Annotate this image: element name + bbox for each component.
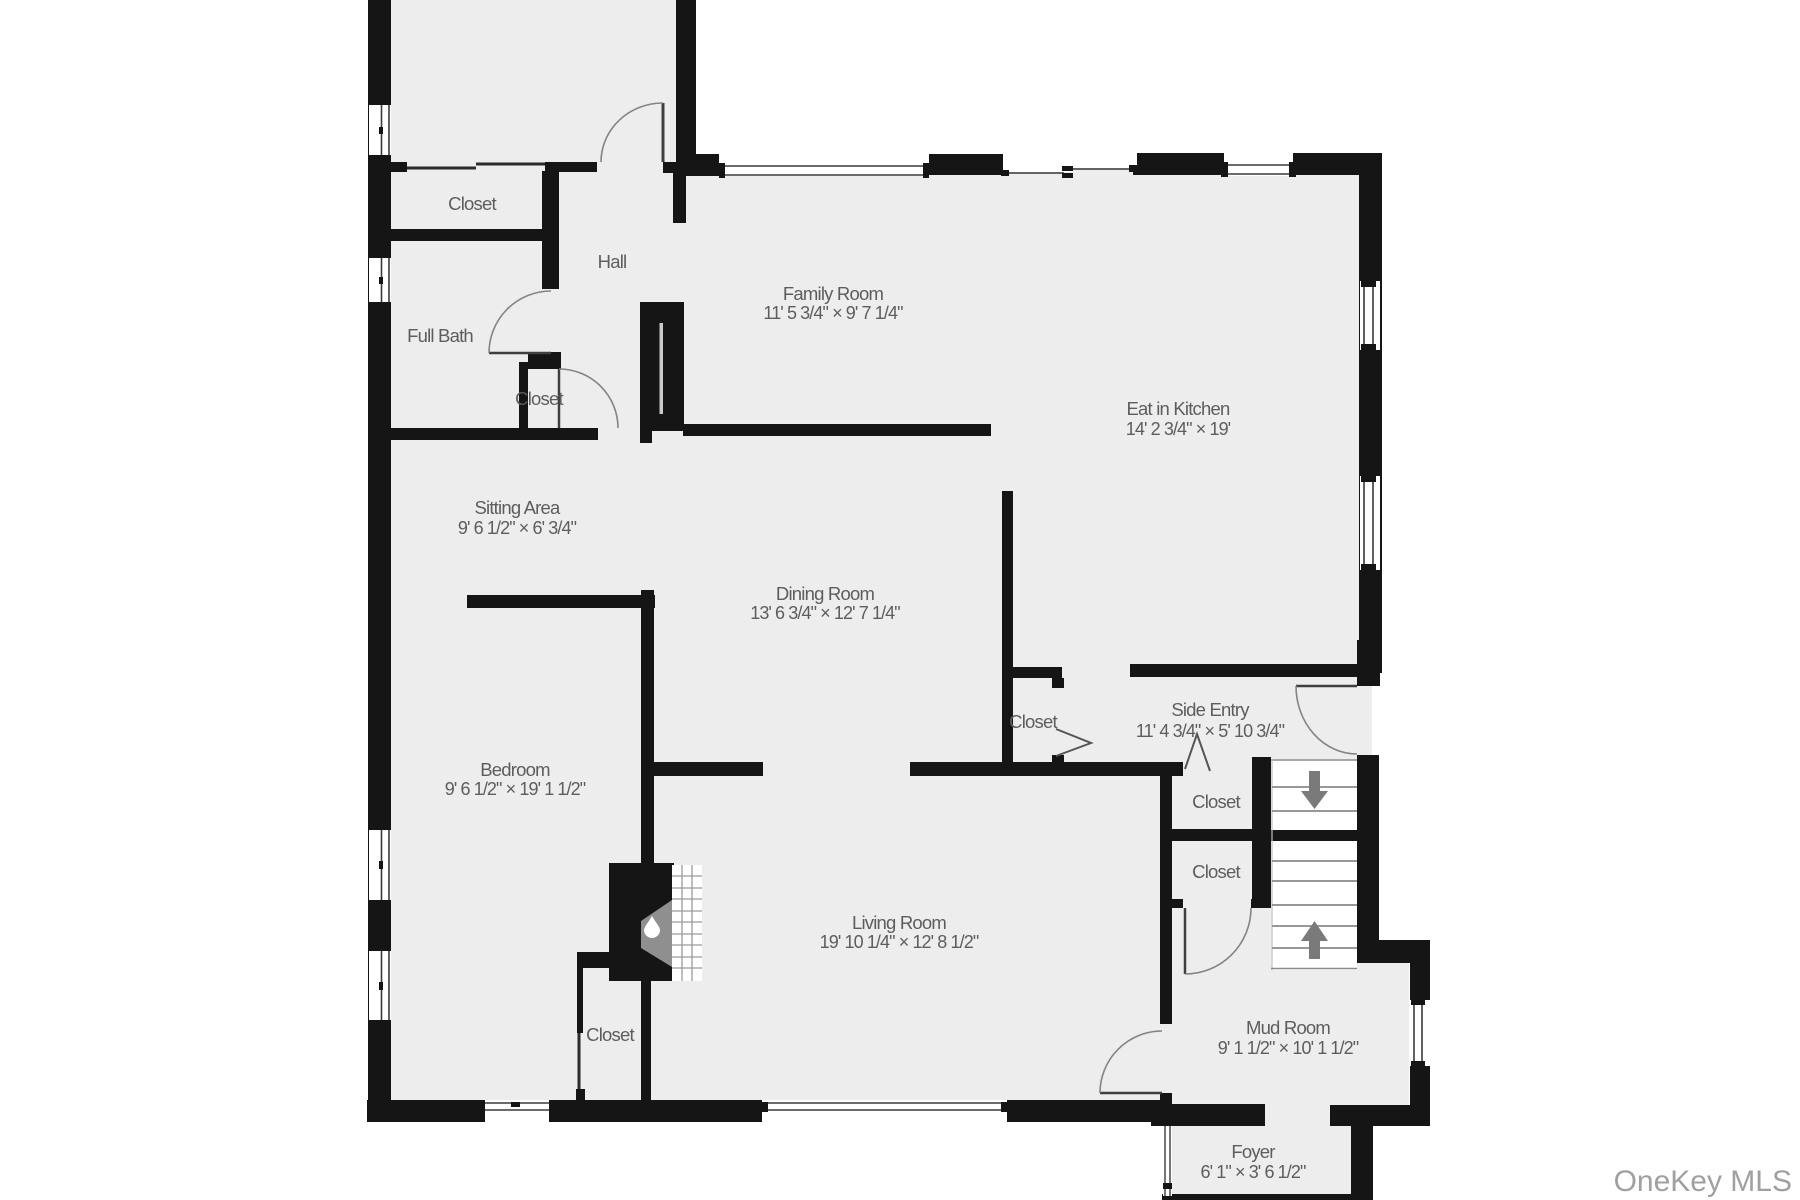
svg-text:Hall: Hall: [598, 251, 627, 272]
svg-text:Closet: Closet: [515, 388, 563, 409]
svg-text:19' 10 1/4" × 12' 8 1/2": 19' 10 1/4" × 12' 8 1/2": [820, 932, 979, 952]
svg-text:Mud Room: Mud Room: [1246, 1017, 1330, 1038]
svg-text:Foyer: Foyer: [1231, 1141, 1275, 1162]
svg-text:Living Room: Living Room: [852, 912, 946, 933]
svg-text:Sitting Area: Sitting Area: [474, 497, 561, 518]
svg-text:14' 2 3/4" × 19': 14' 2 3/4" × 19': [1126, 419, 1231, 439]
svg-text:Bedroom: Bedroom: [480, 759, 550, 780]
svg-text:9' 6 1/2" × 19' 1 1/2": 9' 6 1/2" × 19' 1 1/2": [445, 779, 586, 799]
svg-text:Side Entry: Side Entry: [1171, 699, 1250, 720]
svg-text:OneKey MLS: OneKey MLS: [1614, 1165, 1792, 1198]
svg-text:Closet: Closet: [448, 193, 496, 214]
svg-text:Dining Room: Dining Room: [776, 583, 875, 604]
svg-text:Full Bath: Full Bath: [407, 325, 473, 346]
svg-text:11' 4 3/4" × 5' 10 3/4": 11' 4 3/4" × 5' 10 3/4": [1136, 721, 1285, 741]
svg-text:9' 1 1/2" × 10' 1 1/2": 9' 1 1/2" × 10' 1 1/2": [1218, 1038, 1359, 1058]
svg-text:13' 6 3/4" × 12' 7 1/4": 13' 6 3/4" × 12' 7 1/4": [750, 603, 900, 623]
svg-text:Closet: Closet: [1009, 711, 1057, 732]
svg-text:Closet: Closet: [1192, 791, 1240, 812]
svg-text:9' 6 1/2" × 6' 3/4": 9' 6 1/2" × 6' 3/4": [458, 518, 577, 538]
svg-text:11' 5 3/4" × 9' 7 1/4": 11' 5 3/4" × 9' 7 1/4": [763, 303, 903, 323]
svg-text:6' 1" × 3' 6 1/2": 6' 1" × 3' 6 1/2": [1201, 1162, 1306, 1182]
svg-text:Closet: Closet: [586, 1024, 634, 1045]
svg-text:Closet: Closet: [1192, 861, 1240, 882]
svg-text:Family Room: Family Room: [783, 283, 884, 304]
svg-text:Eat in Kitchen: Eat in Kitchen: [1127, 398, 1230, 419]
